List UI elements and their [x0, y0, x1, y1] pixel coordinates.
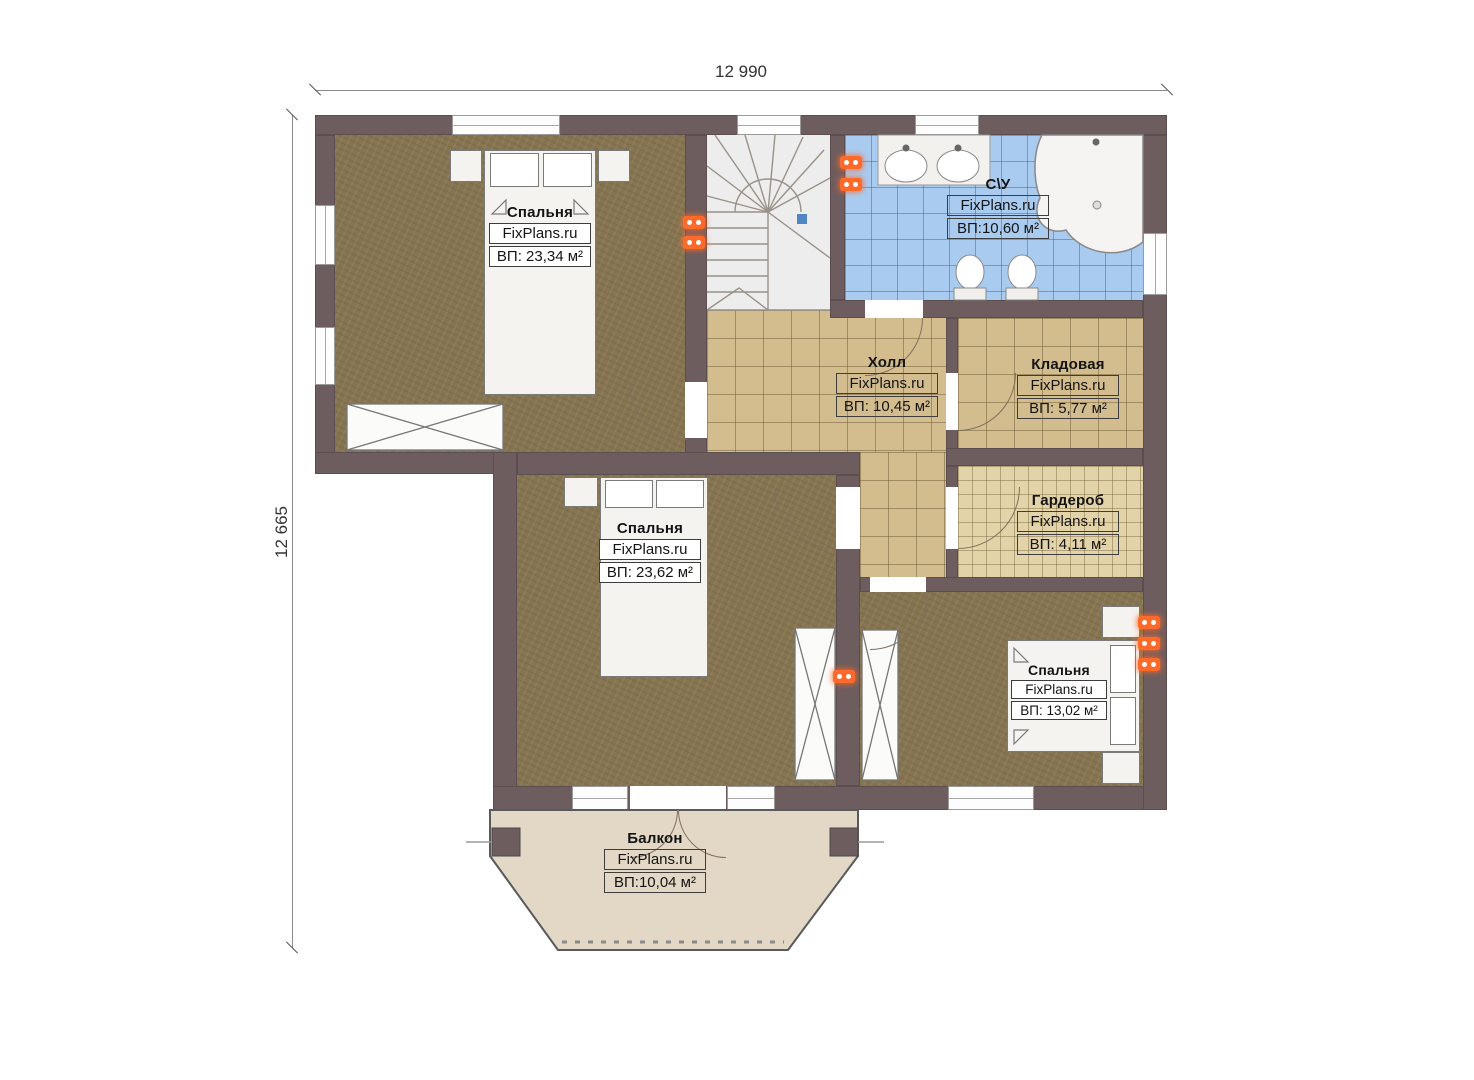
socket-icon — [840, 178, 862, 191]
room-area: ВП:10,60 м² — [947, 218, 1049, 239]
watermark: FixPlans.ru — [947, 195, 1049, 216]
floor-corridor — [860, 452, 946, 577]
dimension-line-top — [315, 90, 1167, 91]
socket-icon — [683, 216, 705, 229]
door-gap-bedroom3 — [870, 577, 926, 592]
wall-exterior-left — [315, 135, 335, 474]
window-bottom-bedroom3 — [948, 786, 1034, 810]
socket-icon — [1138, 658, 1160, 671]
socket-icon — [1138, 637, 1160, 650]
room-name: Спальня — [507, 204, 573, 221]
wall-bedroom2-top — [517, 452, 860, 475]
room-name: С\У — [986, 176, 1011, 193]
nightstand — [598, 150, 630, 182]
room-area: ВП:10,04 м² — [604, 872, 706, 893]
window-balcony-left — [572, 786, 628, 810]
pillow — [543, 153, 592, 187]
dimension-height-label: 12 665 — [272, 462, 292, 602]
label-balcony: Балкон FixPlans.ru ВП:10,04 м² — [593, 830, 717, 893]
window-left-upper — [315, 205, 335, 265]
label-bathroom: С\У FixPlans.ru ВП:10,60 м² — [936, 176, 1060, 239]
watermark: FixPlans.ru — [604, 849, 706, 870]
room-name: Балкон — [627, 830, 682, 847]
watermark: FixPlans.ru — [599, 539, 701, 560]
pillow — [605, 480, 653, 508]
nightstand — [1102, 606, 1140, 638]
floor-plan: Спальня FixPlans.ru ВП: 23,34 м² С\У Fix… — [0, 0, 1474, 1080]
window-balcony-right — [727, 786, 775, 810]
window-bedroom1-top — [452, 115, 560, 135]
wall-storage-bottom — [946, 448, 1143, 466]
door-gap-bathroom — [865, 300, 923, 318]
wall-wing-bottom — [315, 452, 517, 474]
room-name: Гардероб — [1032, 492, 1105, 509]
label-storage: Кладовая FixPlans.ru ВП: 5,77 м² — [1006, 356, 1130, 419]
room-area: ВП: 23,34 м² — [489, 246, 591, 267]
window-bathroom-top — [915, 115, 979, 135]
watermark: FixPlans.ru — [836, 373, 938, 394]
watermark: FixPlans.ru — [489, 223, 591, 244]
dimension-line-left — [292, 115, 293, 948]
room-name: Кладовая — [1031, 356, 1104, 373]
floor-staircase — [707, 135, 830, 310]
door-gap-balcony — [630, 786, 726, 810]
label-bedroom2: Спальня FixPlans.ru ВП: 23,62 м² — [588, 520, 712, 583]
room-name: Холл — [868, 354, 906, 371]
label-wardrobe: Гардероб FixPlans.ru ВП: 4,11 м² — [1006, 492, 1130, 555]
nightstand — [1102, 752, 1140, 784]
door-gap-bedroom2 — [836, 487, 860, 549]
room-area: ВП: 10,45 м² — [836, 396, 938, 417]
room-area: ВП: 13,02 м² — [1011, 701, 1107, 720]
window-right-bathroom — [1143, 233, 1167, 295]
dimension-width-label: 12 990 — [315, 62, 1167, 82]
pillow — [656, 480, 704, 508]
room-name: Спальня — [1028, 662, 1090, 678]
room-area: ВП: 5,77 м² — [1017, 398, 1119, 419]
watermark: FixPlans.ru — [1017, 511, 1119, 532]
nightstand — [564, 477, 598, 507]
room-name: Спальня — [617, 520, 683, 537]
socket-icon — [833, 670, 855, 683]
socket-icon — [840, 156, 862, 169]
wall-bedroom2-left — [493, 452, 517, 810]
room-area: ВП: 23,62 м² — [599, 562, 701, 583]
socket-icon — [1138, 616, 1160, 629]
label-hall: Холл FixPlans.ru ВП: 10,45 м² — [825, 354, 949, 417]
label-bedroom3: Спальня FixPlans.ru ВП: 13,02 м² — [1000, 662, 1118, 720]
door-gap-wardrobe — [946, 487, 958, 549]
pillow — [490, 153, 539, 187]
label-bedroom1: Спальня FixPlans.ru ВП: 23,34 м² — [478, 204, 602, 267]
window-left-lower — [315, 327, 335, 385]
socket-icon — [683, 236, 705, 249]
room-area: ВП: 4,11 м² — [1017, 534, 1119, 555]
watermark: FixPlans.ru — [1011, 680, 1107, 699]
nightstand — [450, 150, 482, 182]
watermark: FixPlans.ru — [1017, 375, 1119, 396]
window-stairs-top — [737, 115, 801, 135]
door-gap-bedroom1 — [685, 382, 707, 438]
